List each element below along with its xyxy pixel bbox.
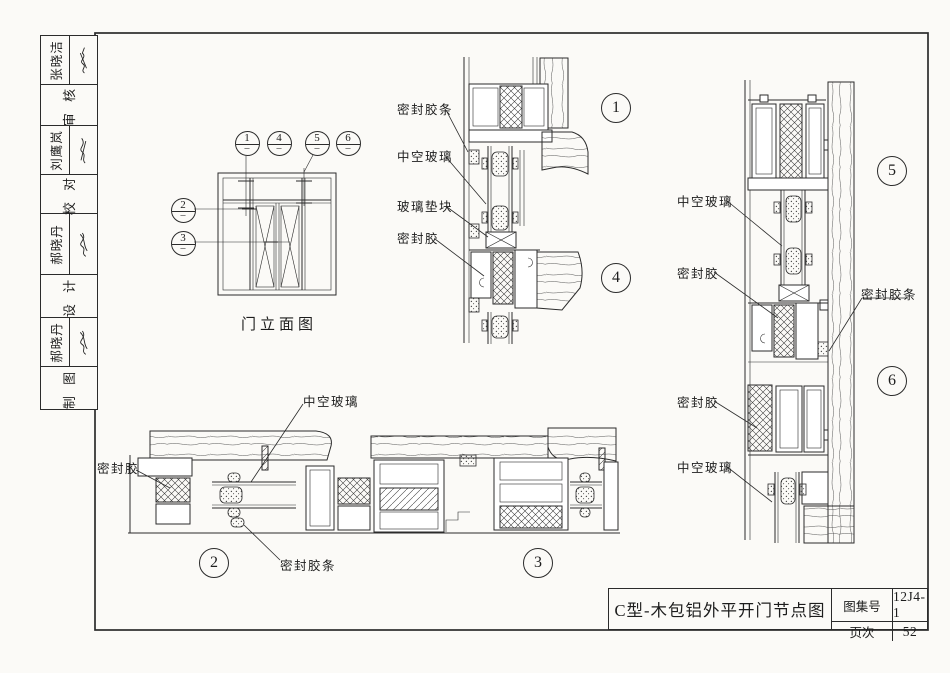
- title-block: C型-木包铝外平开门节点图 图集号 12J4-1 页次 52: [608, 588, 928, 630]
- sidebar-row-shenhe: 审 核: [41, 85, 97, 126]
- sidebar-row-sheji: 设 计: [41, 275, 97, 318]
- elevation-caption: 门立面图: [241, 313, 317, 334]
- name-zhangxiaojie: 张晓洁: [45, 40, 64, 81]
- role-label-proofread: 校 对: [59, 173, 78, 214]
- label-glass-block: 玻璃垫块: [397, 196, 453, 215]
- callout-circle-5: 5 –: [305, 131, 330, 156]
- page-number-value: 52: [893, 622, 927, 641]
- callout-circle-3: 3 –: [171, 231, 196, 256]
- section-detail-5-6: [714, 80, 908, 543]
- atlas-number-value: 12J4-1: [893, 589, 927, 621]
- label-sealant: 密封胶: [677, 392, 719, 411]
- name-haoxiaodan: 郝晓丹: [45, 224, 64, 265]
- detail-circle-5: 5: [877, 156, 907, 186]
- callout-circle-1: 1 –: [235, 131, 260, 156]
- sidebar-row-designer-name: 郝晓丹: [41, 214, 97, 275]
- door-elevation: [194, 155, 336, 295]
- detail-circle-2: 2: [199, 548, 229, 578]
- sheet-title: C型-木包铝外平开门节点图: [609, 589, 832, 629]
- atlas-number-label: 图集号: [832, 589, 893, 621]
- callout-circle-2: 2 –: [171, 198, 196, 223]
- role-label-check: 审 核: [59, 84, 78, 125]
- sidebar-row-proofreader-name: 刘鹰岚: [41, 126, 97, 175]
- sidebar-row-jiaodui: 校 对: [41, 175, 97, 214]
- role-label-draft: 制 图: [59, 367, 78, 408]
- handwritten-signature-icon: [76, 46, 90, 74]
- detail-circle-6: 6: [877, 366, 907, 396]
- label-sealant: 密封胶: [677, 263, 719, 282]
- label-seal-strip: 密封胶条: [397, 99, 453, 118]
- label-insulating-glass: 中空玻璃: [677, 457, 733, 476]
- signature: [69, 126, 98, 174]
- label-insulating-glass: 中空玻璃: [303, 391, 359, 410]
- label-insulating-glass: 中空玻璃: [397, 146, 453, 165]
- detail-circle-3: 3: [523, 548, 553, 578]
- name-haoxiaodan: 郝晓丹: [45, 322, 64, 363]
- label-seal-strip: 密封胶条: [280, 555, 336, 574]
- technical-drawing-canvas: [0, 0, 950, 673]
- label-seal-strip: 密封胶条: [861, 284, 917, 303]
- signature-column: 张晓洁 审 核 刘鹰岚 校 对 郝晓丹: [40, 35, 98, 410]
- name-liuyinglan: 刘鹰岚: [45, 130, 64, 171]
- callout-circle-4: 4 –: [267, 131, 292, 156]
- handwritten-signature-icon: [76, 136, 90, 164]
- detail-circle-4: 4: [601, 263, 631, 293]
- handwritten-signature-icon: [76, 230, 90, 258]
- section-detail-2-3: [128, 404, 620, 560]
- drawing-page: 张晓洁 审 核 刘鹰岚 校 对 郝晓丹: [0, 0, 950, 673]
- sidebar-row-drafter-name: 郝晓丹: [41, 318, 97, 367]
- role-label-design: 设 计: [59, 275, 78, 316]
- label-sealant: 密封胶: [97, 458, 139, 477]
- sidebar-row-checker-name: 张晓洁: [41, 36, 97, 85]
- signature: [69, 36, 98, 84]
- section-detail-1-4: [435, 57, 588, 344]
- sidebar-row-zhitu: 制 图: [41, 367, 97, 409]
- signature: [69, 214, 98, 274]
- callout-circle-6: 6 –: [336, 131, 361, 156]
- signature: [69, 318, 98, 366]
- detail-circle-1: 1: [601, 93, 631, 123]
- handwritten-signature-icon: [76, 328, 90, 356]
- label-sealant: 密封胶: [397, 228, 439, 247]
- label-insulating-glass: 中空玻璃: [677, 191, 733, 210]
- page-number-label: 页次: [832, 622, 893, 641]
